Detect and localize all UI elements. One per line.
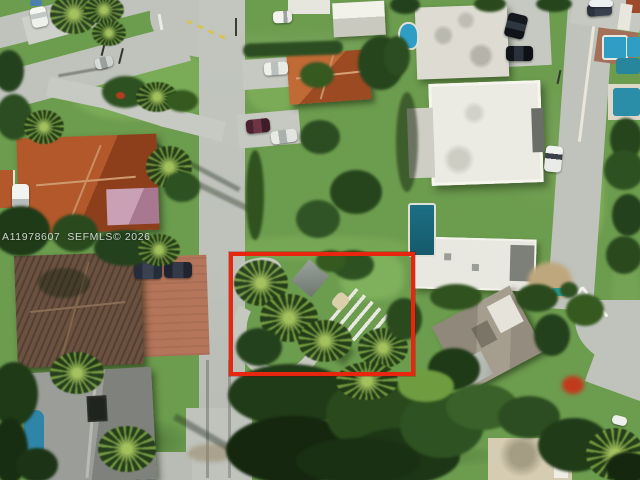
roof-shadow-band (531, 108, 545, 152)
utility-pole (235, 18, 237, 36)
hedge (612, 194, 640, 236)
modern-white-house-upper (415, 4, 509, 79)
tree (384, 36, 410, 76)
swimming-pool (602, 35, 628, 60)
swimming-pool (616, 58, 640, 74)
red-tarp-object (562, 376, 584, 394)
swimming-pool (613, 88, 640, 116)
swimming-pool (627, 37, 640, 57)
red-flowering-plant (116, 92, 125, 99)
hedge-strip (246, 150, 264, 240)
tree (566, 294, 604, 326)
watermark: A11978607 SEFMLS© 2026 (2, 231, 151, 243)
palm-shadow-on-roof (38, 268, 90, 298)
tree (300, 120, 340, 154)
street-sign (557, 70, 562, 84)
tree (534, 314, 570, 356)
tree (300, 62, 334, 88)
aerial-photo: A11978607 SEFMLS© 2026 (0, 0, 640, 480)
modern-white-house-main (428, 80, 543, 186)
tree (516, 284, 558, 312)
highlight-box (229, 252, 415, 376)
blue-object-top-edge (30, 0, 42, 6)
house-brown-roof (14, 252, 144, 368)
tree (606, 452, 640, 480)
ac-unit (472, 264, 479, 271)
swimming-pool-lap (408, 203, 436, 257)
tree (330, 170, 382, 214)
roof-ridge (68, 145, 101, 224)
white-car-small (611, 414, 628, 427)
tree-shadow-west-of-white-house (396, 92, 418, 192)
palm-tree (50, 352, 104, 394)
hedge (604, 150, 640, 190)
hedge (606, 236, 640, 274)
white-golf-cart (273, 11, 293, 24)
tree (164, 172, 200, 202)
white-car (264, 61, 289, 76)
palm-tree (24, 110, 64, 144)
white-shed (332, 1, 386, 38)
dark-car (164, 262, 192, 278)
tree (16, 448, 58, 480)
island-bush (166, 90, 198, 112)
white-car-top-right (589, 0, 613, 7)
black-car (506, 46, 533, 61)
palm-tree (92, 20, 126, 46)
dense-trees (296, 438, 420, 480)
roof-skylight (86, 395, 107, 422)
ac-unit (444, 253, 451, 260)
house-pink-wing (106, 188, 159, 226)
white-car-driving (544, 145, 564, 173)
hedge-row (430, 284, 482, 310)
maroon-car (245, 118, 270, 134)
palm-tree (98, 426, 156, 472)
tree (296, 200, 340, 238)
white-building-top (288, 0, 330, 14)
roof-dark-patch (471, 320, 497, 348)
